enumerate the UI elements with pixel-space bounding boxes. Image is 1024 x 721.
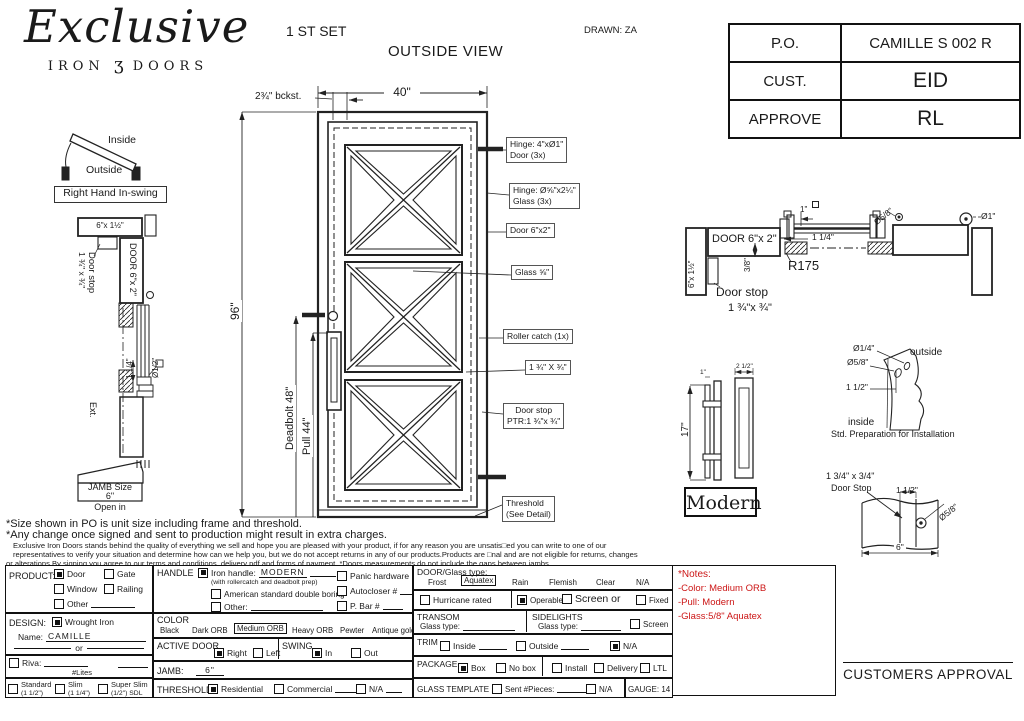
option-other-handle: Other: (211, 602, 323, 612)
option-label: P. Bar # (350, 601, 380, 611)
option-label: LTL (653, 663, 667, 673)
blank-line[interactable] (463, 623, 515, 631)
pull-height-dim: 17" (680, 422, 691, 437)
option-label: No box (509, 663, 536, 673)
sidelights-glass-type: Glass type: (538, 622, 621, 631)
callout-text: Door stop (507, 405, 560, 416)
po-value: CAMILLE S 002 R (841, 24, 1020, 62)
option-size: (1 1/2") (21, 690, 51, 698)
option-super-slim: Super Slim(1/2") SDL (98, 681, 148, 697)
divider (87, 648, 144, 649)
checkbox-hurricane[interactable] (420, 595, 430, 605)
trim-section: TRIM Inside Outside N/A (413, 634, 673, 656)
swing-label: SWING (282, 641, 313, 651)
checkbox-other-handle[interactable] (211, 602, 221, 612)
checkbox-autocloser[interactable] (337, 586, 347, 596)
divider (542, 657, 543, 676)
option-label: Box (471, 663, 486, 673)
checkbox-delivery[interactable] (594, 663, 604, 673)
option-door: Door (54, 569, 85, 579)
handle-note: (with rollercatch and deadbolt prep) (211, 579, 318, 586)
option-operable: Operable (517, 595, 563, 605)
glass-clear[interactable]: Clear (596, 578, 615, 587)
checkbox-super-slim[interactable] (98, 684, 108, 694)
pull-top-dim: 1" (700, 369, 706, 376)
option-trim-inside: Inside (440, 641, 507, 651)
checkbox-no-box[interactable] (496, 663, 506, 673)
notes-glass: -Glass:5/8" Aquatex (678, 611, 762, 622)
checkbox-out[interactable] (351, 648, 361, 658)
option-sent-pieces: Sent #Pieces: (492, 684, 587, 694)
glass-flemish[interactable]: Flemish (549, 578, 577, 587)
blank-line[interactable] (251, 603, 323, 611)
option-iron-handle: Iron handle:MODERN (198, 567, 336, 578)
option-install: Install (552, 663, 587, 673)
blank-line[interactable] (386, 685, 402, 693)
callout-text: Hinge: 4"xØ1" (510, 139, 563, 150)
checkbox-operable[interactable] (517, 595, 527, 605)
option-label: Other: (224, 602, 248, 612)
approval-table: P.O.CAMILLE S 002 R CUST.EID APPROVERL (728, 23, 1021, 139)
blank-line[interactable] (581, 623, 621, 631)
package-label: PACKAGE (417, 659, 457, 669)
glass-rain[interactable]: Rain (512, 578, 528, 587)
design-name-label: Name: (18, 632, 43, 642)
glass-aquatex-selected[interactable]: Aquatex (461, 575, 496, 586)
callout-text: 1 ¾" X ¾" (529, 362, 567, 373)
option-in: In (312, 648, 332, 658)
option-label: Screen or (575, 593, 621, 605)
sidelights-label: SIDELIGHTS (532, 612, 583, 622)
color-section: COLOR Black Dark ORB Medium ORB Heavy OR… (153, 613, 413, 638)
threshold-section: THRESHOLD Residential Commercial N/A (153, 679, 413, 698)
exterior-label: Ext. (87, 402, 97, 418)
option-trim-outside: Outside (516, 641, 589, 651)
riva-section: Riva: #Lites (5, 655, 153, 678)
checkbox-panic[interactable] (337, 571, 347, 581)
jamb-value[interactable]: 6" (196, 665, 224, 676)
callout-door-stop: Door stopPTR:1 ¾"x ¾" (503, 403, 564, 429)
view-title: OUTSIDE VIEW (388, 44, 503, 61)
option-trim-na: N/A (610, 641, 637, 651)
option-out: Out (351, 648, 378, 658)
head-door-size: DOOR 6"x 2" (712, 233, 777, 245)
callout-text: Door 6"x2" (510, 225, 551, 236)
option-label: Install (565, 663, 587, 673)
option-commercial: Commercial (274, 684, 361, 694)
callout-hinge-glass: Hinge: Ø⅝"x2¼"Glass (3x) (509, 183, 580, 209)
lites-label: #Lites (72, 668, 92, 677)
checkbox-screen[interactable] (562, 594, 572, 604)
threshold-label: THRESHOLD (157, 685, 213, 695)
checkbox-fixed[interactable] (636, 595, 646, 605)
option-slim: Slim(1 1/4") (55, 681, 90, 697)
option-label: Left (266, 648, 280, 658)
checkbox-in[interactable] (312, 648, 322, 658)
set-label: 1 ST SET (286, 24, 346, 39)
head-dim-38: 3/8" (744, 258, 753, 272)
checkbox-riva[interactable] (9, 658, 19, 668)
callout-stop-size: 1 ¾" X ¾" (525, 360, 571, 375)
option-label: Hurricane rated (433, 595, 492, 605)
checkbox-pbar[interactable] (337, 601, 347, 611)
product-label: PRODUCT: (9, 571, 55, 581)
callout-text: Glass (3x) (513, 196, 576, 207)
checkbox-slim[interactable] (55, 684, 65, 694)
field-label: Glass type: (420, 622, 460, 631)
callout-text: Roller catch (1x) (507, 331, 569, 342)
disclaimer-line: *Any change once signed and sent to prod… (6, 529, 387, 541)
handle-model-value[interactable]: MODERN (259, 567, 307, 578)
field-label: Glass type: (538, 622, 578, 631)
design-label: DESIGN: (9, 618, 46, 628)
transom-glass-type: Glass type: (420, 622, 515, 631)
option-label: Operable (530, 596, 563, 605)
notes-pull: -Pull: Modern (678, 597, 735, 608)
glazing-section: Hurricane rated Operable Screen or Fixed (413, 590, 673, 610)
callout-text: Glass ⅝" (515, 267, 549, 278)
stop-size-label: 1 3/4" x 3/4" (826, 472, 874, 482)
backset-dimension: 2¾" bckst. (255, 91, 301, 102)
option-label: Wrought Iron (65, 617, 114, 627)
checkbox-window[interactable] (54, 584, 64, 594)
checkbox-trim-na[interactable] (610, 641, 620, 651)
notes-section: *Notes: -Color: Medium ORB -Pull: Modern… (672, 565, 836, 696)
callout-glass: Glass ⅝" (511, 265, 553, 280)
option-other-product: Other (54, 599, 135, 609)
table-row: CUST.EID (729, 62, 1020, 100)
option-label: Gate (117, 569, 135, 579)
or-label: or (75, 643, 83, 653)
logo-doors: DOORS (133, 59, 208, 74)
checkbox-sent-pieces[interactable] (492, 684, 502, 694)
checkbox-trim-inside[interactable] (440, 641, 450, 651)
option-label: American standard double boring (224, 590, 345, 599)
head-jamb-size: 6"x 1½" (688, 261, 697, 288)
option-wrought-iron: Wrought Iron (52, 617, 114, 627)
option-label: Autocloser # (350, 586, 397, 596)
handle-label: HANDLE (157, 568, 194, 578)
package-section: PACKAGE Box No box Install Delivery LTL (413, 656, 673, 678)
color-medium-orb-selected[interactable]: Medium ORB (234, 623, 287, 634)
checkbox-box[interactable] (458, 663, 468, 673)
option-standard: Standard(1 1/2") (8, 681, 51, 697)
option-label: Riva: (22, 658, 41, 668)
door-stop-label: Door stop1 ¾" x ¾" (76, 252, 96, 293)
option-sidelight-screen: Screen (630, 619, 668, 629)
checkbox-wrought-iron[interactable] (52, 617, 62, 627)
glass-frost[interactable]: Frost (428, 578, 446, 587)
option-threshold-na: N/A (356, 684, 402, 694)
jamb-label: JAMB: (157, 666, 184, 676)
left-section-drawing (40, 120, 255, 520)
option-label: Slim (68, 681, 90, 690)
glass-stop-dim: 1 1/4" (126, 358, 135, 379)
option-label: Door (67, 569, 85, 579)
option-label: Right (227, 648, 247, 658)
jamb-header-size: 6"x 1½" (80, 222, 140, 231)
install-dim-112: 1 1/2" (846, 383, 868, 392)
checkbox-right[interactable] (214, 648, 224, 658)
logo-iron: IRON (48, 59, 105, 74)
door-glass-section: DOOR/Glass type: Frost Aquatex Rain Flem… (413, 565, 673, 590)
option-label: Residential (221, 684, 263, 694)
product-section: PRODUCT: Door Gate Window Railing Other (5, 565, 153, 613)
blank-line[interactable] (310, 569, 336, 577)
option-hurricane: Hurricane rated (420, 595, 492, 605)
color-pewter[interactable]: Pewter (340, 626, 364, 635)
color-antique-gold[interactable]: Antique gold (372, 626, 415, 635)
option-size: (1 1/4") (68, 690, 90, 698)
door-size-label: DOOR 6"x 2" (127, 243, 137, 296)
option-label: N/A (623, 641, 637, 651)
jamb-section: JAMB: 6" (153, 661, 413, 679)
option-label: Window (67, 584, 97, 594)
option-label: Screen (643, 620, 668, 629)
option-american-boring: American standard double boring (211, 589, 345, 599)
head-door-stop-label: Door stop (716, 286, 768, 299)
blank-line[interactable] (557, 685, 587, 693)
option-riva: Riva: (9, 658, 88, 668)
checkbox-residential[interactable] (208, 684, 218, 694)
logo-exclusive: Exclusive (24, 2, 249, 52)
checkbox-other-product[interactable] (54, 599, 64, 609)
install-dia-14: Ø1/4" (853, 344, 874, 353)
divider (526, 611, 527, 632)
transom-label: TRANSOM (417, 612, 460, 622)
checkbox-template-na[interactable] (586, 684, 596, 694)
approve-value: RL (841, 100, 1020, 138)
notes-title: *Notes: (678, 569, 711, 580)
cust-label: CUST. (729, 62, 841, 100)
screw-dia-dim: Ø1/2" (152, 358, 161, 378)
callout-hinge-door: Hinge: 4"xØ1"Door (3x) (506, 137, 567, 163)
option-right: Right (214, 648, 247, 658)
checkbox-american-boring[interactable] (211, 589, 221, 599)
deadbolt-dimension: Deadbolt 48" (284, 385, 296, 452)
square-symbol-icon (812, 201, 819, 208)
install-inside-label: inside (848, 417, 874, 428)
customers-approval-label: CUSTOMERS APPROVAL (843, 662, 1013, 682)
order-form: PRODUCT: Door Gate Window Railing Other … (5, 565, 837, 698)
blank-line[interactable] (479, 642, 507, 650)
option-window: Window (54, 584, 97, 594)
option-label: Out (364, 648, 378, 658)
notes-color: -Color: Medium ORB (678, 583, 766, 594)
swing-direction-label: Right Hand In-swing (54, 186, 167, 203)
option-label: N/A (369, 684, 383, 694)
checkbox-ltl[interactable] (640, 663, 650, 673)
option-label: Outside (529, 641, 558, 651)
stop-name-label: Door Stop (831, 484, 872, 494)
callout-roller-catch: Roller catch (1x) (503, 329, 573, 344)
callout-threshold: Threshold(See Detail) (502, 496, 555, 522)
color-heavy-orb[interactable]: Heavy ORB (292, 626, 333, 635)
color-label: COLOR (157, 615, 189, 625)
option-no-box: No box (496, 663, 536, 673)
checkbox-trim-outside[interactable] (516, 641, 526, 651)
swing-outside-label: Outside (86, 165, 122, 177)
pull-width-dim: 2 1/2" (736, 363, 753, 370)
option-size: (1/2") SDL (111, 690, 148, 698)
profile-section: Standard(1 1/2") Slim(1 1/4") Super Slim… (5, 678, 153, 698)
blank-line[interactable] (383, 602, 403, 610)
option-label: Delivery (607, 663, 638, 673)
callout-text: PTR:1 ¾"x ¾" (507, 416, 560, 427)
gauge-label: GAUGE: 14 (628, 685, 670, 694)
checkbox-gate[interactable] (104, 569, 114, 579)
logo-ornament-icon: ʒ (114, 55, 124, 75)
option-box: Box (458, 663, 486, 673)
stop-dim-112: 1 1/2" (896, 486, 918, 495)
option-label: In (325, 648, 332, 658)
checkbox-commercial[interactable] (274, 684, 284, 694)
door-stop-size: 1 ¾" x ¾" (76, 252, 85, 293)
height-dimension: 96" (229, 300, 242, 322)
checkbox-railing[interactable] (104, 584, 114, 594)
logo-subtitle: IRON ʒ DOORS (28, 56, 228, 75)
callout-text: Door (3x) (510, 150, 563, 161)
table-row: P.O.CAMILLE S 002 R (729, 24, 1020, 62)
install-dia-58: Ø5/8" (847, 358, 868, 367)
handle-section: HANDLE Iron handle:MODERN (with rollerca… (153, 565, 413, 613)
color-dark-orb[interactable]: Dark ORB (192, 626, 228, 635)
option-label: Other (67, 599, 88, 609)
active-door-label: ACTIVE DOOR (157, 641, 219, 651)
checkbox-standard[interactable] (8, 684, 18, 694)
option-screen-or: Screen or (562, 593, 621, 605)
option-gate: Gate (104, 569, 135, 579)
option-fixed: Fixed (636, 595, 669, 605)
install-caption: Std. Preparation for Installation (831, 430, 955, 440)
option-panic: Panic hardware (337, 571, 409, 581)
option-label: N/A (599, 685, 612, 694)
blank-line[interactable] (44, 659, 88, 667)
radius-label: R175 (788, 259, 819, 273)
option-pbar: P. Bar # (337, 601, 403, 611)
head-dia-1: Ø1" (981, 212, 995, 221)
or-divider: or (14, 643, 144, 653)
stop-dim-6: 6" (894, 543, 906, 552)
option-template-na: N/A (586, 684, 612, 694)
transom-sidelights-section: TRANSOM Glass type: SIDELIGHTS Glass typ… (413, 610, 673, 634)
divider (14, 648, 71, 649)
handle-style-label: Modern (684, 487, 757, 517)
callout-text: Threshold (506, 498, 551, 509)
checkbox-left[interactable] (253, 648, 263, 658)
drawing-sheet: Exclusive IRON ʒ DOORS 1 ST SET OUTSIDE … (0, 0, 1024, 721)
checkbox-install[interactable] (552, 663, 562, 673)
table-row: APPROVERL (729, 100, 1020, 138)
glass-template-section: GLASS TEMPLATE Sent #Pieces: N/A (413, 678, 625, 698)
callout-text: Hinge: Ø⅝"x2¼" (513, 185, 576, 196)
design-name-value[interactable]: CAMILLE (46, 631, 146, 642)
checkbox-sidelight-screen[interactable] (630, 619, 640, 629)
option-label: Super Slim (111, 681, 148, 690)
option-label: Panic hardware (350, 571, 409, 581)
option-label: Commercial (287, 684, 332, 694)
drawn-by-label: DRAWN: ZA (584, 26, 637, 36)
checkbox-threshold-na[interactable] (356, 684, 366, 694)
option-left: Left (253, 648, 280, 658)
active-swing-section: ACTIVE DOOR Right Left SWING In Out (153, 638, 413, 661)
option-delivery: Delivery (594, 663, 638, 673)
head-door-stop-size: 1 ¾"x ¾" (728, 302, 772, 314)
option-label: Standard (21, 681, 51, 690)
option-railing: Railing (104, 584, 143, 594)
option-label: Iron handle: (211, 568, 256, 578)
color-black[interactable]: Black (160, 626, 179, 635)
width-dimension: 40" (384, 86, 420, 99)
callout-door-profile: Door 6"x2" (506, 223, 555, 238)
blank-line[interactable] (91, 600, 135, 608)
option-autocloser: Autocloser # (337, 586, 414, 596)
cust-value: EID (841, 62, 1020, 100)
swing-inside-label: Inside (108, 135, 136, 147)
glass-na[interactable]: N/A (636, 578, 649, 587)
option-label: Inside (453, 641, 476, 651)
gauge-cell: GAUGE: 14 (625, 678, 673, 698)
approve-label: APPROVE (729, 100, 841, 138)
trim-label: TRIM (417, 637, 438, 647)
callout-text: (See Detail) (506, 509, 551, 520)
checkbox-iron-handle[interactable] (198, 568, 208, 578)
option-ltl: LTL (640, 663, 667, 673)
checkbox-door[interactable] (54, 569, 64, 579)
blank-line[interactable] (561, 642, 589, 650)
option-label: Sent #Pieces: (505, 685, 554, 694)
design-section: DESIGN: Wrought Iron Name: CAMILLE or (5, 613, 153, 655)
divider (511, 591, 512, 608)
head-dim-114: 1 1/4" (812, 233, 834, 242)
option-label: Railing (117, 584, 143, 594)
pull-dimension: Pull 44" (301, 415, 313, 457)
door-stop-text: Door stop (86, 252, 96, 293)
head-dim-1: 1" (800, 206, 807, 215)
jamb-size-value: 6" (78, 492, 142, 502)
install-outside-label: outside (910, 347, 942, 358)
blank-line[interactable] (118, 660, 148, 668)
open-in-label: Open in (78, 503, 142, 513)
po-label: P.O. (729, 24, 841, 62)
glass-template-label: GLASS TEMPLATE (417, 685, 489, 694)
option-label: Fixed (649, 596, 669, 605)
option-residential: Residential (208, 684, 263, 694)
